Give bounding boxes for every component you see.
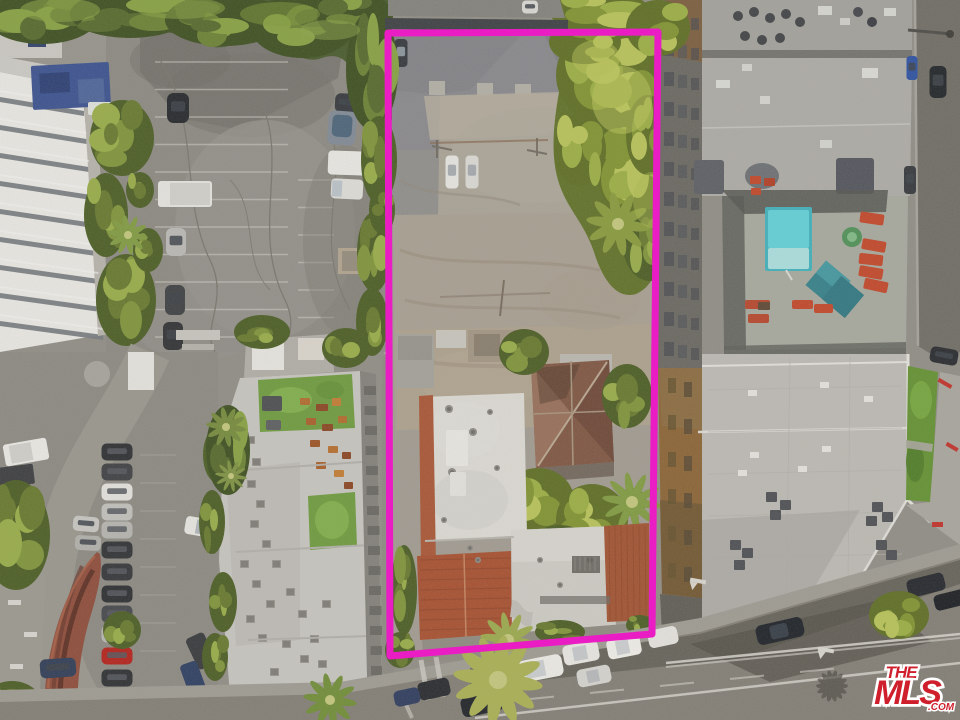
svg-text:.COM: .COM xyxy=(928,702,955,713)
